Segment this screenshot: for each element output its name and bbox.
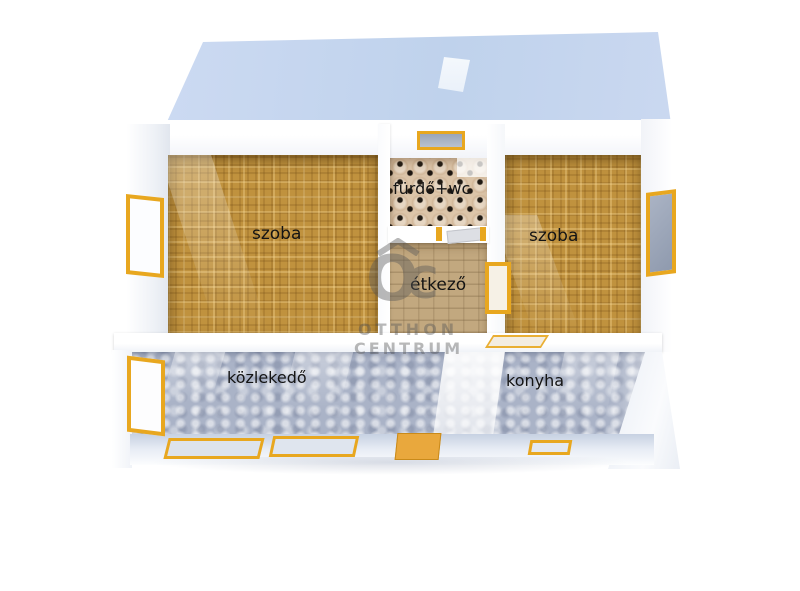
door-dining-to-right-room xyxy=(485,262,511,314)
room-label-furdo-wc: fürdő+wc xyxy=(393,179,470,198)
bathroom-door-post xyxy=(480,227,486,241)
room-label-szoba-left: szoba xyxy=(252,224,301,244)
front-window-2 xyxy=(269,436,359,457)
window-right-room xyxy=(646,189,676,277)
top-exterior-wall xyxy=(114,120,674,158)
room-label-konyha: konyha xyxy=(506,371,564,390)
front-window-3 xyxy=(528,440,573,455)
room-label-kozlekedo: közlekedő xyxy=(227,368,307,387)
floorplan-render: szoba fürdő+wc étkező szoba közlekedő ko… xyxy=(0,0,800,591)
room-label-szoba-right: szoba xyxy=(529,226,578,246)
door-hallway-left xyxy=(127,356,165,437)
window-bathroom xyxy=(417,131,465,150)
front-entrance-door xyxy=(395,433,442,460)
front-window-1 xyxy=(163,438,264,459)
bathroom-corner-fixture xyxy=(457,158,487,177)
wall-between-rooms-and-hallway xyxy=(114,333,662,352)
kitchen-door-threshold xyxy=(485,335,549,348)
ground-shadow xyxy=(150,457,630,475)
room-left-floor xyxy=(168,155,378,333)
light-streak xyxy=(168,155,269,333)
roof-plane xyxy=(166,31,672,125)
window-left-room xyxy=(126,194,164,278)
room-label-etkezo: étkező xyxy=(410,275,466,295)
bathroom-door-post xyxy=(436,227,442,241)
